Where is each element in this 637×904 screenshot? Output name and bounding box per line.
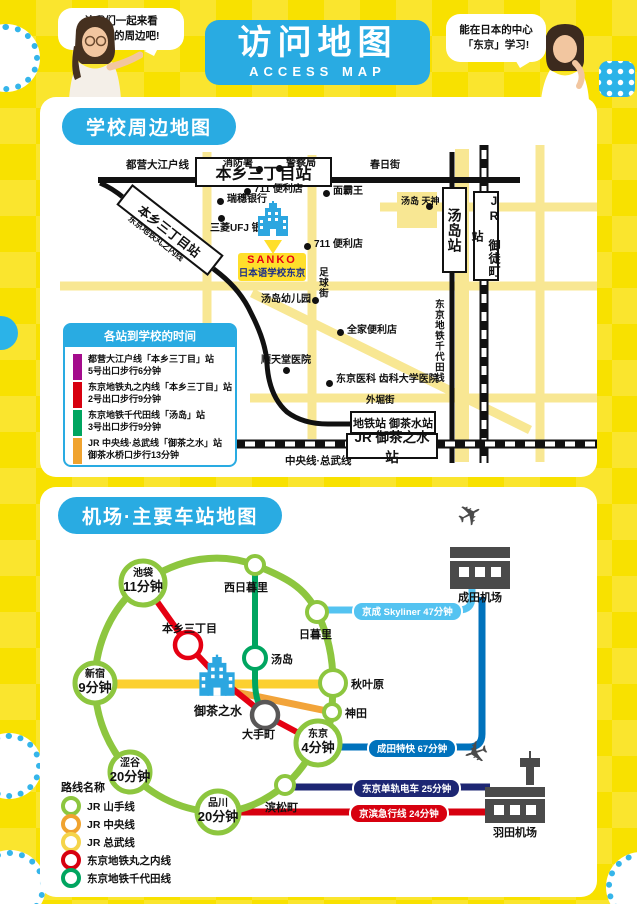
legend-chiyoda: 东京地铁千代田线	[61, 868, 171, 888]
legend-text-chiyoda: 东京地铁千代田线「汤岛」站 3号出口步行9分钟	[88, 409, 205, 433]
access-map-poster: 让我们一起来看 看学校的周边吧! 能在日本的中心 「东京」学习! 访问地图 AC…	[0, 0, 637, 904]
page-title-english: ACCESS MAP	[249, 64, 386, 79]
poi-familymart: 全家便利店	[347, 325, 397, 338]
person-right-illustration	[526, 22, 604, 100]
legend-yamanote: JR 山手线	[61, 796, 135, 816]
kasuga-street-label: 春日街	[370, 160, 400, 173]
legend-marunouchi-label: 东京地铁丸之内线	[87, 853, 171, 868]
poi-police-dot	[276, 165, 283, 172]
soccer-street-label: 足球街	[316, 267, 328, 299]
legend-marunouchi-ring	[61, 850, 81, 870]
station-shinagawa-time: 20分钟	[196, 810, 240, 825]
station-ikebukuro: 池袋 11分钟	[121, 568, 165, 594]
haneda-airport-label: 羽田机场	[483, 824, 547, 840]
decor-dot-grid-top-right	[599, 61, 635, 97]
photo-student-left	[48, 14, 143, 99]
station-nishinippori: 西日暮里	[224, 579, 268, 595]
poi-police: 警察局	[286, 158, 316, 171]
station-shinjuku-time: 9分钟	[73, 681, 117, 696]
person-left-illustration	[48, 14, 143, 99]
legend-sobu-ring	[61, 832, 81, 852]
station-yushima2: 汤岛	[271, 651, 293, 667]
legend-yamanote-ring	[61, 796, 81, 816]
poi-tmdu-hospital-dot	[326, 380, 333, 387]
poi-fire-station: 消防署	[223, 158, 253, 171]
station-nippori: 日暮里	[299, 626, 332, 642]
narita-terminal-glyph	[448, 545, 512, 589]
yushima-tenjin-block: 汤岛 天神	[397, 192, 437, 228]
station-box-jr-okachimachi: JR 御徒町站	[473, 191, 499, 281]
legend-color-oedo	[73, 354, 82, 380]
legend-color-jr	[73, 438, 82, 464]
airport-station-map-card: 机场·主要车站地图	[40, 487, 597, 897]
station-shinjuku: 新宿 9分钟	[73, 669, 117, 695]
school-callout-pointer	[264, 240, 282, 254]
nex-pill: 成田特快 67分钟	[367, 738, 457, 759]
legend-chiyoda-ring	[61, 868, 81, 888]
poi-seveneleven-right-dot	[304, 243, 311, 250]
walking-time-legend-title: 各站到学校的时间	[65, 325, 235, 347]
station-ikebukuro-name: 池袋	[121, 568, 165, 580]
station-hongo2: 本乡三丁目	[162, 620, 217, 636]
chiyoda-line-label: 东京地铁千代田线	[432, 299, 444, 383]
station-box-yushima: 汤岛站	[442, 187, 467, 273]
narita-airport-icon	[448, 545, 512, 594]
station-shinagawa-name: 品川	[196, 798, 240, 810]
station-shibuya: 涩谷 20分钟	[108, 758, 152, 784]
legend-row-marunouchi: 东京地铁丸之内线「本乡三丁目」站 2号出口步行9分钟	[73, 381, 232, 408]
poi-juntendo-hospital: 顺天堂医院	[261, 355, 311, 368]
narita-airport-label: 成田机场	[448, 589, 512, 605]
sotobori-street-label: 外堀街	[366, 395, 395, 407]
school-building-glyph-2	[197, 654, 237, 700]
station-ikebukuro-time: 11分钟	[121, 580, 165, 595]
oedo-line-label: 都营大江户线	[126, 159, 189, 172]
legend-text-oedo: 都营大江户线「本乡三丁目」站 5号出口步行6分钟	[88, 353, 214, 377]
poi-mufg-bank-dot	[218, 215, 225, 222]
station-shinagawa: 品川 20分钟	[196, 798, 240, 824]
decor-circle-left-lower	[0, 733, 42, 799]
poi-mianbawang-dot	[323, 190, 330, 197]
legend-row-chiyoda: 东京地铁千代田线「汤岛」站 3号出口步行9分钟	[73, 409, 205, 436]
legend-sobu-label: JR 总武线	[87, 835, 135, 850]
chuo-sobu-line-label: 中央线·总武线	[285, 455, 352, 468]
poi-fire-station-dot	[256, 166, 263, 173]
school-building-icon-railmap	[197, 654, 237, 705]
walking-time-legend: 各站到学校的时间 都营大江户线「本乡三丁目」站 5号出口步行6分钟 东京地铁丸之…	[63, 323, 237, 467]
school-subname: 日本语学校东京	[238, 268, 306, 280]
poi-yushima-kindergarten-dot	[312, 297, 319, 304]
station-akihabara: 秋叶原	[351, 676, 384, 692]
poi-familymart-dot	[337, 329, 344, 336]
station-hamamatsucho: 滨松町	[265, 799, 298, 815]
school-name: SANKO	[238, 254, 306, 268]
legend-text-marunouchi: 东京地铁丸之内线「本乡三丁目」站 2号出口步行9分钟	[88, 381, 232, 405]
legend-row-oedo: 都营大江户线「本乡三丁目」站 5号出口步行6分钟	[73, 353, 214, 380]
legend-marunouchi: 东京地铁丸之内线	[61, 850, 171, 870]
legend-chiyoda-label: 东京地铁千代田线	[87, 871, 171, 886]
speech-bubble-right-text: 能在日本的中心 「东京」学习!	[459, 23, 533, 53]
legend-chuo-ring	[61, 814, 81, 834]
station-kanda: 神田	[345, 705, 367, 721]
legend-text-jr: JR 中央线·总武线「御茶之水」站 御茶水桥口步行13分钟	[88, 437, 222, 461]
school-callout-label: SANKO 日本语学校东京	[238, 253, 306, 281]
station-shibuya-name: 涩谷	[108, 758, 152, 770]
route-legend-title: 路线名称	[61, 779, 105, 795]
legend-row-jr: JR 中央线·总武线「御茶之水」站 御茶水桥口步行13分钟	[73, 437, 222, 464]
legend-color-marunouchi	[73, 382, 82, 408]
decor-circle-top-left	[0, 24, 40, 92]
haneda-airport-icon	[483, 751, 547, 828]
legend-sobu: JR 总武线	[61, 832, 135, 852]
station-tokyo-time: 4分钟	[296, 741, 340, 756]
poi-tmdu-hospital: 东京医科 齿科大学医院	[336, 374, 439, 387]
school-area-map-card: 学校周边地图 都	[40, 97, 597, 477]
skyliner-pill: 京成 Skyliner 47分钟	[352, 601, 463, 622]
station-shibuya-time: 20分钟	[108, 770, 152, 785]
station-box-jr-ochanomizu: JR 御茶之水站	[346, 433, 438, 459]
poi-yushima-kindergarten: 汤岛幼儿园	[261, 294, 311, 307]
legend-yamanote-label: JR 山手线	[87, 799, 135, 814]
page-title-chinese: 访问地图	[238, 26, 398, 60]
haneda-terminal-glyph	[483, 751, 547, 823]
station-otemachi: 大手町	[242, 726, 275, 742]
monorail-pill: 东京单轨电车 25分钟	[352, 778, 461, 799]
school-building-glyph	[256, 201, 290, 239]
page-title: 访问地图 ACCESS MAP	[205, 20, 430, 85]
keikyu-pill: 京滨急行线 24分钟	[349, 803, 449, 824]
school-building-icon	[256, 201, 290, 244]
station-tokyo: 东京 4分钟	[296, 729, 340, 755]
legend-chuo: JR 中央线	[61, 814, 135, 834]
legend-chuo-label: JR 中央线	[87, 817, 135, 832]
poi-yushima-tenjin-dot	[426, 203, 433, 210]
station-tokyo-name: 东京	[296, 729, 340, 741]
poi-juntendo-hospital-dot	[283, 367, 290, 374]
poi-yushima-tenjin: 汤岛 天神	[401, 196, 440, 207]
legend-color-chiyoda	[73, 410, 82, 436]
decor-circle-left	[0, 316, 18, 350]
poi-seveneleven-right: 711 便利店	[314, 239, 363, 252]
station-shinjuku-name: 新宿	[73, 669, 117, 681]
photo-student-right	[526, 22, 604, 100]
poi-mianbawang: 面霸王	[333, 186, 363, 199]
poi-mizuho-bank-dot	[217, 198, 224, 205]
decor-circle-bottom-right	[606, 852, 637, 904]
